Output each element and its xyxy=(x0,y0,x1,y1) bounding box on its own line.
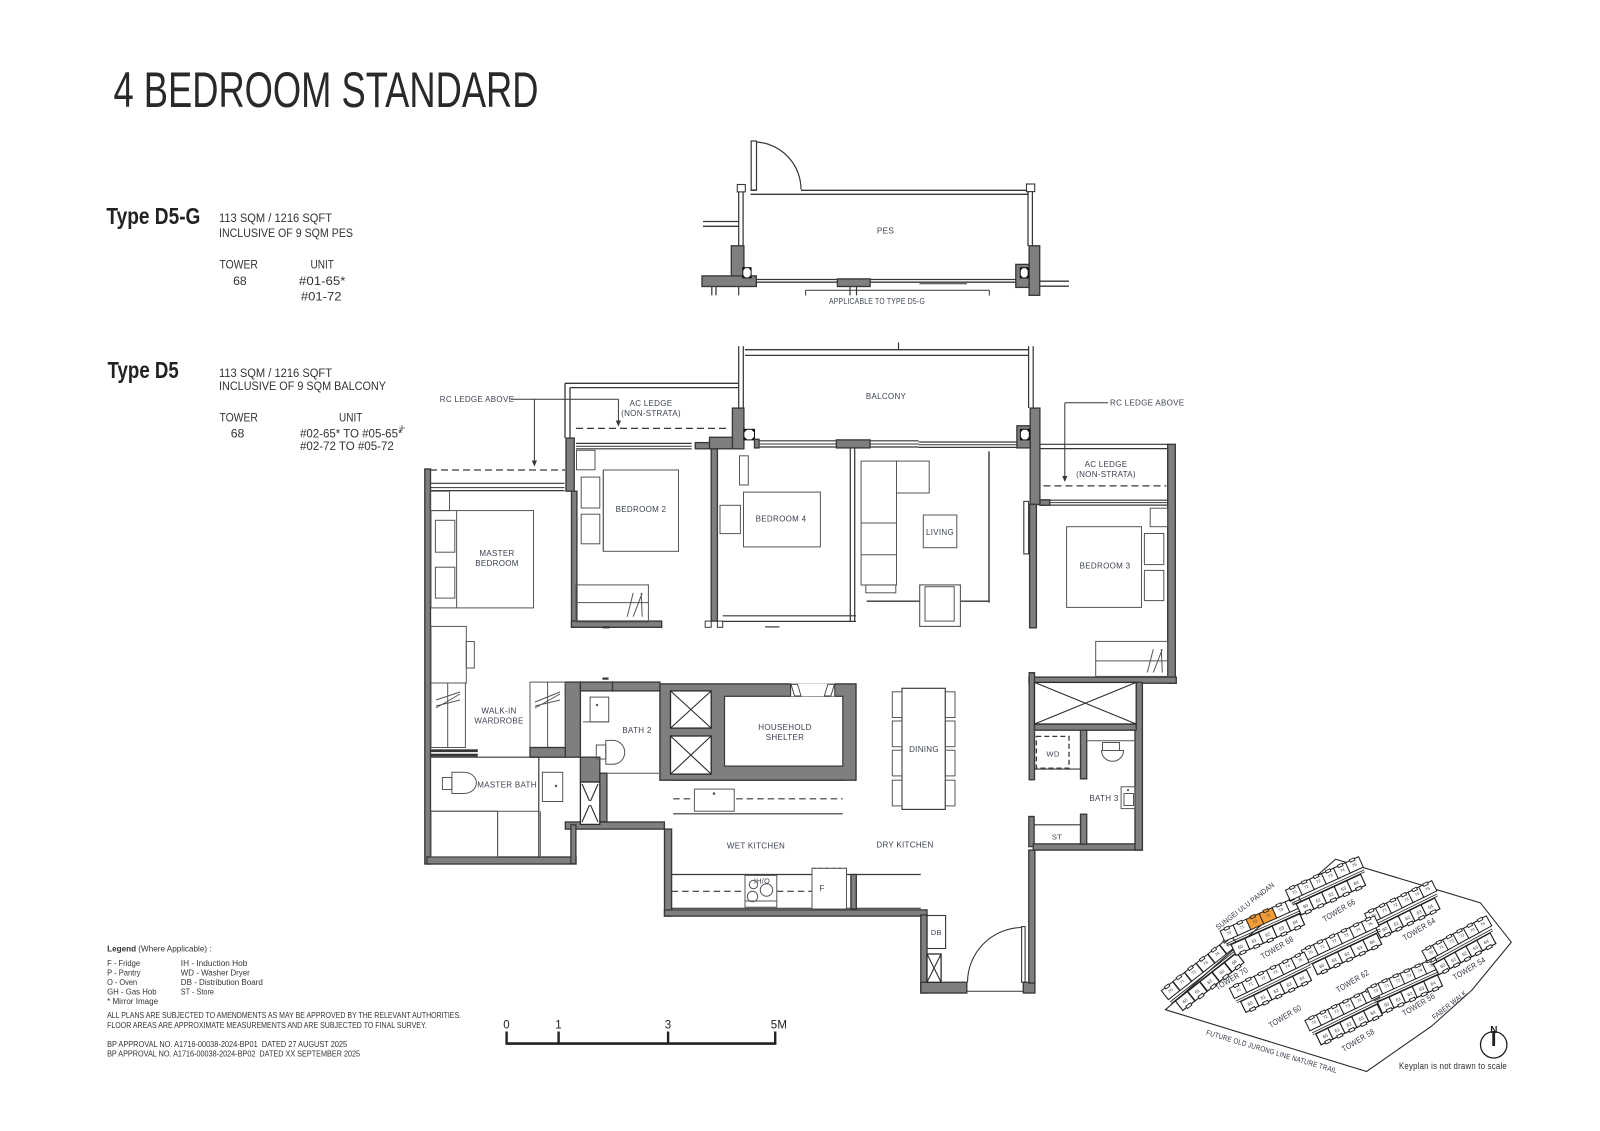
svg-text:68: 68 xyxy=(231,427,245,441)
svg-text:BP APPROVAL NO. A1716-00038-20: BP APPROVAL NO. A1716-00038-2024-BP01 DA… xyxy=(107,1039,347,1049)
svg-text:UNIT: UNIT xyxy=(339,410,363,424)
svg-text:INCLUSIVE OF 9 SQM BALCONY: INCLUSIVE OF 9 SQM BALCONY xyxy=(219,379,386,393)
svg-text:0: 0 xyxy=(503,1020,510,1032)
svg-text:FABER WALK: FABER WALK xyxy=(1430,989,1469,1022)
svg-text:TOWER: TOWER xyxy=(219,258,258,272)
svg-text:MASTER: MASTER xyxy=(479,549,514,558)
svg-text:INCLUSIVE OF 9 SQM PES: INCLUSIVE OF 9 SQM PES xyxy=(219,226,353,240)
svg-text:N: N xyxy=(1490,1025,1498,1036)
svg-text:68: 68 xyxy=(233,274,247,288)
svg-text:ST: ST xyxy=(1052,833,1062,842)
svg-text:BEDROOM 2: BEDROOM 2 xyxy=(616,505,667,514)
svg-text:#02-72 TO #05-72: #02-72 TO #05-72 xyxy=(300,439,394,453)
svg-text:BEDROOM 3: BEDROOM 3 xyxy=(1080,562,1131,571)
svg-text:WD: WD xyxy=(1046,750,1059,759)
svg-text:Keyplan is not drawn to scale: Keyplan is not drawn to scale xyxy=(1399,1061,1507,1072)
svg-text:HOUSEHOLD: HOUSEHOLD xyxy=(758,723,811,732)
svg-text:RC LEDGE ABOVE: RC LEDGE ABOVE xyxy=(440,395,514,404)
svg-text:IH - Induction Hob: IH - Induction Hob xyxy=(181,958,248,968)
svg-text:BP APPROVAL NO. A1716-00038-20: BP APPROVAL NO. A1716-00038-2024-BP02 DA… xyxy=(107,1048,360,1058)
svg-text:F: F xyxy=(819,884,824,893)
svg-text:Type D5: Type D5 xyxy=(108,357,179,383)
svg-text:MASTER BATH: MASTER BATH xyxy=(477,781,537,790)
svg-text:LIVING: LIVING xyxy=(926,528,954,537)
svg-text:APPLICABLE TO TYPE D5-G: APPLICABLE TO TYPE D5-G xyxy=(829,296,925,306)
svg-text:1: 1 xyxy=(555,1020,562,1032)
svg-text:3: 3 xyxy=(665,1020,672,1032)
svg-text:(NON-STRATA): (NON-STRATA) xyxy=(621,409,681,418)
svg-text:TOWER: TOWER xyxy=(219,410,258,424)
svg-text:#01-65*: #01-65* xyxy=(299,274,346,288)
svg-text:* Mirror Image: * Mirror Image xyxy=(107,996,158,1006)
svg-text:P - Pantry: P - Pantry xyxy=(107,967,141,977)
svg-text:#01-72: #01-72 xyxy=(301,289,342,303)
svg-text:DB - Distribution Board: DB - Distribution Board xyxy=(181,977,263,987)
svg-text:O - Oven: O - Oven xyxy=(107,977,137,987)
svg-text:(NON-STRATA): (NON-STRATA) xyxy=(1076,470,1136,479)
svg-text:BALCONY: BALCONY xyxy=(866,392,907,401)
svg-text:BEDROOM 4: BEDROOM 4 xyxy=(756,515,807,524)
svg-text:WARDROBE: WARDROBE xyxy=(474,717,523,726)
svg-text:FLOOR AREAS ARE APPROXIMATE ME: FLOOR AREAS ARE APPROXIMATE MEASUREMENTS… xyxy=(107,1020,427,1030)
svg-text:WET KITCHEN: WET KITCHEN xyxy=(727,842,785,851)
svg-text:Legend (Where Applicable) :: Legend (Where Applicable) : xyxy=(107,944,211,954)
svg-text:WALK-IN: WALK-IN xyxy=(481,707,516,716)
svg-text:ST - Store: ST - Store xyxy=(181,987,214,997)
svg-text:TOWER 60: TOWER 60 xyxy=(1267,1003,1303,1030)
svg-text:113 SQM / 1216 SQFT: 113 SQM / 1216 SQFT xyxy=(219,211,332,225)
svg-text:UNIT: UNIT xyxy=(311,258,335,272)
svg-text:RC LEDGE ABOVE: RC LEDGE ABOVE xyxy=(1110,399,1184,408)
svg-text:IH/O: IH/O xyxy=(754,877,770,886)
svg-text:AC LEDGE: AC LEDGE xyxy=(1085,460,1128,469)
svg-text:DRY KITCHEN: DRY KITCHEN xyxy=(876,841,933,850)
svg-text:113 SQM / 1216 SQFT: 113 SQM / 1216 SQFT xyxy=(219,366,332,380)
svg-text:4 BEDROOM STANDARD: 4 BEDROOM STANDARD xyxy=(114,61,539,118)
svg-text:AC LEDGE: AC LEDGE xyxy=(630,399,673,408)
svg-text:DINING: DINING xyxy=(909,745,939,754)
svg-text:WD - Washer Dryer: WD - Washer Dryer xyxy=(181,967,250,977)
svg-text:BATH 2: BATH 2 xyxy=(622,726,651,735)
svg-text:Type D5-G: Type D5-G xyxy=(106,203,200,229)
svg-text:BATH 3: BATH 3 xyxy=(1089,794,1118,803)
svg-text:SHELTER: SHELTER xyxy=(766,733,804,742)
svg-text:ALL PLANS ARE SUBJECTED TO AME: ALL PLANS ARE SUBJECTED TO AMENDMENTS AS… xyxy=(107,1010,461,1020)
svg-text:BEDROOM: BEDROOM xyxy=(475,559,518,568)
svg-text:5M: 5M xyxy=(771,1020,788,1032)
svg-text:F - Fridge: F - Fridge xyxy=(107,958,140,968)
svg-text:PES: PES xyxy=(877,227,895,236)
svg-text:DB: DB xyxy=(931,928,942,937)
